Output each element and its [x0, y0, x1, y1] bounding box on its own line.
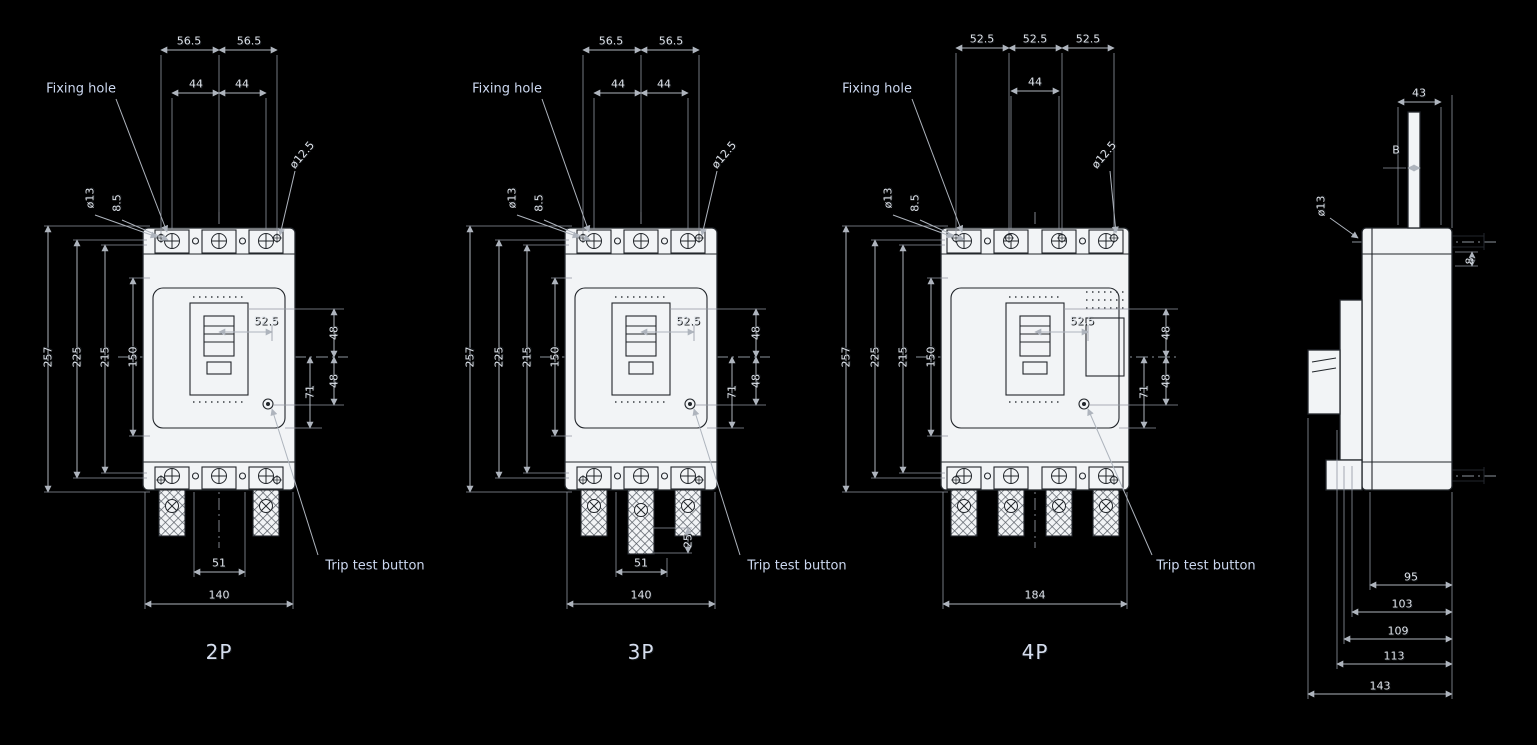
front-view-4p — [842, 48, 1180, 609]
dim-2p-width: 140 — [209, 590, 230, 601]
dim-2p-right-mid: 71 — [305, 385, 316, 399]
dim-3p-right-upper: 48 — [751, 326, 762, 340]
dim-3p-terminal-thickness: 8.5 — [534, 194, 545, 212]
dim-2p-top-outer-left: 56.5 — [177, 36, 202, 47]
dim-2p-terminal-thickness: 8.5 — [112, 194, 123, 212]
dim-2p-height-center: 150 — [128, 347, 139, 368]
dim-4p-right-upper: 48 — [1161, 326, 1172, 340]
dim-side-plate: 8 — [1465, 258, 1476, 265]
dim-side-depth-3: 109 — [1388, 626, 1409, 637]
dim-3p-terminal-dia: ø13 — [507, 188, 518, 209]
dim-3p-top-outer-left: 56.5 — [599, 36, 624, 47]
drawing-linework — [0, 0, 1537, 745]
dim-3p-handle-offset: 52.5 — [676, 316, 701, 327]
dim-side-b: B — [1392, 145, 1400, 156]
dim-3p-top-outer-right: 56.5 — [659, 36, 684, 47]
trip-test-callout-4p: Trip test button — [1156, 560, 1255, 573]
dim-3p-top-inner-left: 44 — [611, 79, 625, 90]
dim-4p-height-overall: 257 — [841, 347, 852, 368]
dim-3p-width: 140 — [631, 590, 652, 601]
dim-4p-height-mount: 225 — [870, 347, 881, 368]
trip-test-callout-2p: Trip test button — [325, 560, 424, 573]
dim-2p-top-outer-right: 56.5 — [237, 36, 262, 47]
dim-2p-handle-offset: 52.5 — [254, 316, 279, 327]
fixing-hole-callout-3p: Fixing hole — [472, 83, 542, 96]
dim-4p-terminal-dia: ø13 — [883, 188, 894, 209]
dim-2p-top-inner-right: 44 — [235, 79, 249, 90]
dim-4p-width: 184 — [1025, 590, 1046, 601]
dim-4p-terminal-thickness: 8.5 — [910, 194, 921, 212]
dim-side-depth-4: 113 — [1384, 651, 1405, 662]
dim-3p-top-inner-right: 44 — [657, 79, 671, 90]
dim-4p-height-inner: 215 — [898, 347, 909, 368]
dim-3p-height-center: 150 — [550, 347, 561, 368]
dim-2p-top-inner-left: 44 — [189, 79, 203, 90]
dim-2p-height-mount: 225 — [72, 347, 83, 368]
front-view-2p — [44, 50, 348, 609]
pole-label-4p: 4P — [1022, 642, 1049, 662]
trip-test-callout-3p: Trip test button — [747, 560, 846, 573]
dim-3p-height-mount: 225 — [494, 347, 505, 368]
dim-3p-height-inner: 215 — [522, 347, 533, 368]
dim-3p-right-mid: 71 — [727, 385, 738, 399]
dim-side-depth-5: 143 — [1370, 681, 1391, 692]
fixing-hole-callout-2p: Fixing hole — [46, 83, 116, 96]
dim-2p-height-overall: 257 — [43, 347, 54, 368]
dim-2p-right-lower: 48 — [329, 374, 340, 388]
dim-2p-bottom-inner: 51 — [212, 558, 226, 569]
dim-4p-top-3: 52.5 — [1076, 34, 1101, 45]
dim-2p-terminal-dia: ø13 — [85, 188, 96, 209]
fixing-hole-callout-4p: Fixing hole — [842, 83, 912, 96]
dim-3p-right-lower: 48 — [751, 374, 762, 388]
dim-4p-top-2: 52.5 — [1023, 34, 1048, 45]
dim-side-depth-1: 95 — [1404, 572, 1418, 583]
dim-4p-top-center: 44 — [1028, 77, 1042, 88]
dim-4p-height-center: 150 — [926, 347, 937, 368]
dim-side-width-top: 43 — [1412, 88, 1426, 99]
front-view-3p — [466, 50, 770, 609]
dim-2p-height-inner: 215 — [100, 347, 111, 368]
dim-side-depth-2: 103 — [1392, 599, 1413, 610]
dim-3p-height-overall: 257 — [465, 347, 476, 368]
pole-label-3p: 3P — [628, 642, 655, 662]
dimension-drawing-page: Fixing hole 56.5 56.5 44 44 ø12.5 ø13 8.… — [0, 0, 1537, 745]
dim-4p-top-1: 52.5 — [970, 34, 995, 45]
dim-4p-right-lower: 48 — [1161, 374, 1172, 388]
pole-label-2p: 2P — [206, 642, 233, 662]
dim-side-terminal-dia: ø13 — [1316, 196, 1327, 217]
dim-4p-right-mid: 71 — [1139, 385, 1150, 399]
dim-4p-handle-offset: 52.5 — [1070, 316, 1095, 327]
dim-3p-bottom-inner: 51 — [634, 558, 648, 569]
dim-3p-lug-extension: 25 — [683, 534, 694, 548]
dim-2p-right-upper: 48 — [329, 326, 340, 340]
